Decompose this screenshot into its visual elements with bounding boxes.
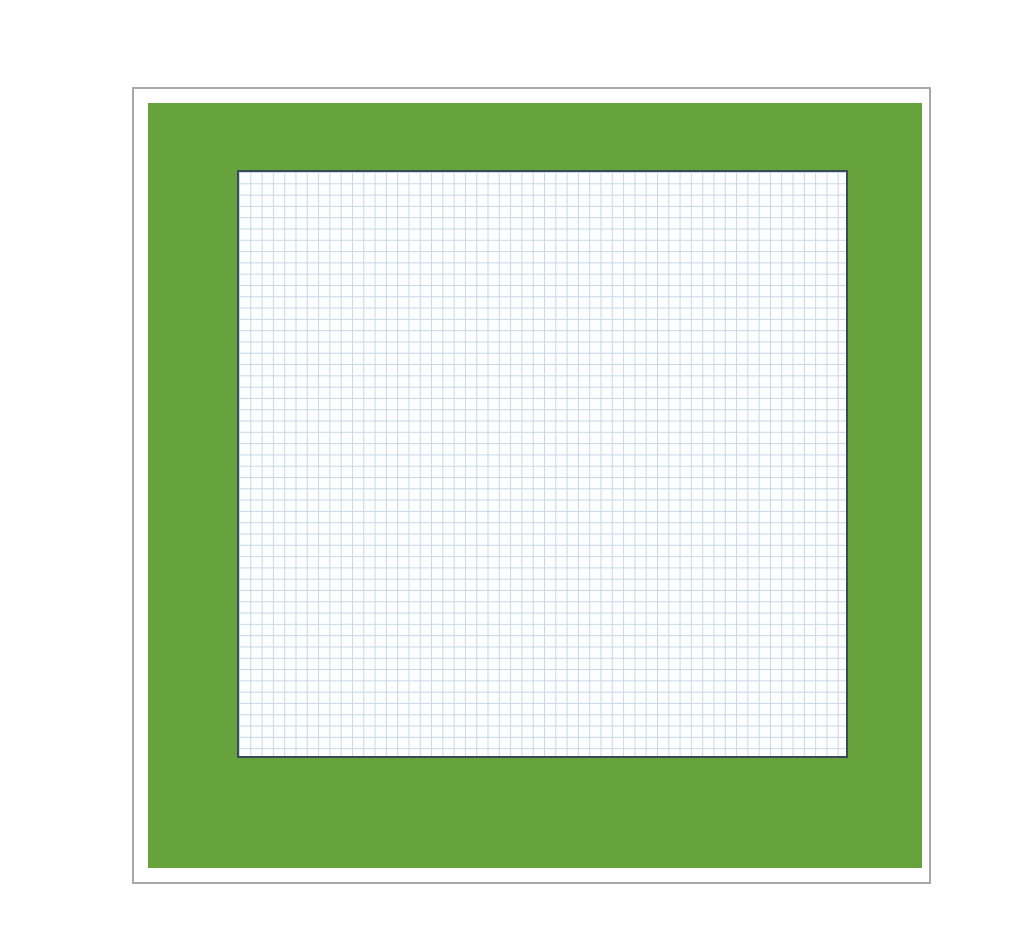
plan-layer (0, 0, 1024, 927)
floorplan-page (0, 0, 1024, 927)
